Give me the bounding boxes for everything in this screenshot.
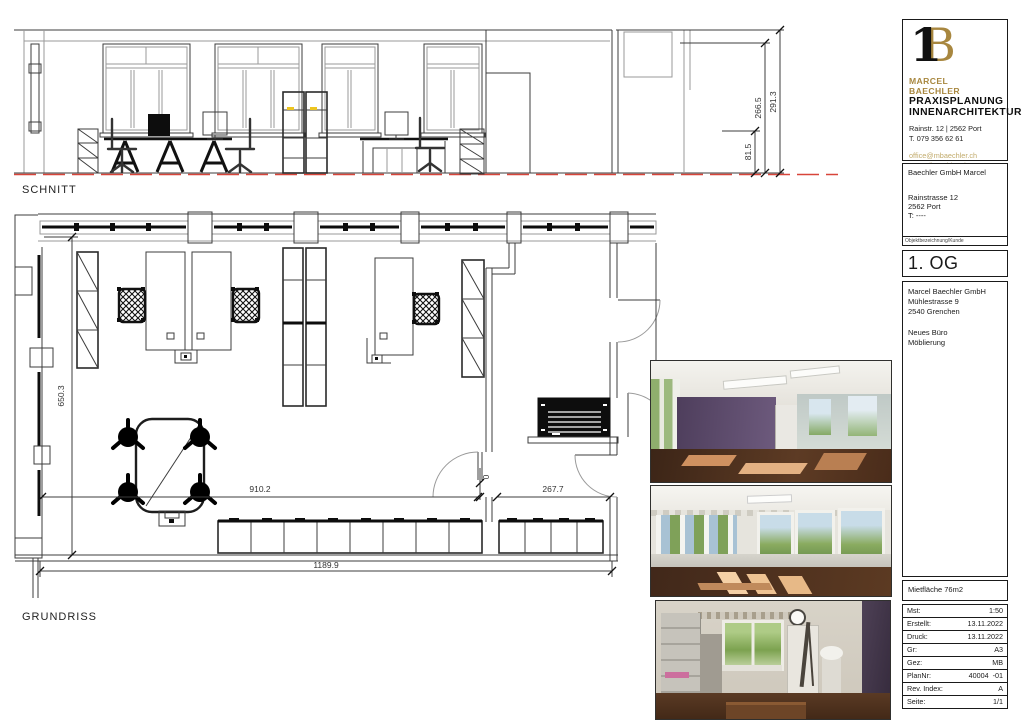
photo1-sun-patch-1 [681, 455, 737, 466]
photo2-light [747, 494, 792, 503]
table-row-page: Seite: 1/1 [902, 695, 1008, 709]
section-wardrobe [486, 73, 530, 173]
table-row-created: Erstellt: 13.11.2022 [902, 617, 1008, 631]
row-label: PlanNr: [907, 670, 931, 682]
brand-email: office@mbaechler.ch [909, 151, 1001, 160]
plan-desk-pair [146, 252, 231, 363]
site-photo-purple-room [650, 360, 892, 483]
brand-address: Rainstr. 12 | 2562 Port [909, 124, 1001, 133]
dim-291: 291.3 [768, 91, 778, 113]
plan-piano [528, 398, 618, 443]
section-drawing: SCHNITT [14, 30, 838, 196]
row-label: Gez: [907, 657, 922, 669]
plan-double-shelf [283, 248, 326, 406]
photo3-ball [820, 646, 843, 660]
photo3-sill [717, 665, 783, 671]
project-city: 2540 Grenchen [908, 307, 1002, 317]
dim-door-zero: 0 [481, 474, 491, 479]
floor-plan-drawing: GRUNDRISS [15, 212, 670, 623]
client-tel: T: ---- [908, 211, 1002, 220]
dim-910: 910.2 [249, 484, 271, 494]
project-company: Marcel Baechler GmbH [908, 287, 1002, 297]
row-label: Seite: [907, 696, 925, 708]
photo2-window-band-left [656, 515, 738, 555]
project-desc-2: Möblierung [908, 338, 1002, 348]
row-label: Gr: [907, 644, 917, 656]
photo3-table [726, 702, 806, 720]
dim-650: 650.3 [56, 385, 66, 407]
photo2-sun-stripe-4 [697, 583, 772, 590]
section-office-chair-2 [226, 119, 254, 172]
area-label: Mietfläche 76m2 [908, 585, 963, 594]
brand-phone: T. 079 356 62 61 [909, 134, 1001, 143]
brand-name: MARCEL BAECHLER [909, 76, 1001, 96]
brand-line-2: INNENARCHITEKTUR [909, 107, 1001, 118]
client-caption: Objektbezeichnung/Kunde [903, 236, 1007, 245]
site-photo-window-room [650, 485, 892, 597]
photo3-shelf [661, 613, 702, 705]
table-row-plan-nr: PlanNr: 40004 -01 [902, 669, 1008, 683]
section-label: SCHNITT [22, 184, 77, 196]
plan-cabinet-row-left [218, 518, 482, 553]
photo1-sun-patch-2 [738, 463, 808, 474]
photo1-purple-wall [677, 397, 775, 449]
brand-line-1: PRAXISPLANUNG [909, 96, 1001, 107]
table-row-scale: Mst: 1:50 [902, 604, 1008, 618]
site-photo-small-room [655, 600, 891, 720]
plan-shelf-left [77, 252, 98, 368]
table-row-drawn-by: Gez: MB [902, 656, 1008, 670]
plan-desk-right [367, 258, 413, 363]
row-label: Mst: [907, 605, 921, 617]
plan-sheet: SCHNITT 291.3 266.5 81.5 [0, 0, 1024, 724]
section-shelf-2 [460, 129, 484, 174]
row-label: Erstellt: [907, 618, 931, 630]
table-row-size: Gr: A3 [902, 643, 1008, 657]
dim-266: 266.5 [753, 97, 763, 119]
plan-left-wall [15, 215, 53, 598]
plan-chair-hatched-3 [412, 292, 439, 324]
section-desk-2 [360, 112, 448, 173]
dim-81: 81.5 [743, 143, 753, 160]
row-value: MB [992, 657, 1003, 669]
photo1-mirror-reflection-2 [848, 396, 877, 436]
table-row-printed: Druck: 13.11.2022 [902, 630, 1008, 644]
photo1-window-wall [651, 379, 680, 454]
project-street: Mühlestrasse 9 [908, 297, 1002, 307]
section-window-2 [212, 44, 305, 137]
dim-1189: 1189.9 [313, 560, 339, 570]
section-office-chair-3 [416, 118, 444, 171]
plan-partition-wall [433, 243, 515, 522]
dim-267: 267.7 [542, 484, 564, 494]
photo3-window [722, 620, 784, 671]
row-value: 40004 -01 [969, 670, 1003, 682]
plan-cabinet-row-right [499, 518, 603, 553]
client-street: Rainstrasse 12 [908, 193, 1002, 202]
photo2-cabinets [651, 554, 891, 568]
photo2-window-1 [757, 512, 794, 560]
logo-monogram-1: 1 [910, 18, 942, 72]
plan-chair-hatched-2 [231, 287, 259, 322]
row-value: A [998, 683, 1003, 695]
row-value: 13.11.2022 [968, 631, 1003, 643]
section-window-1 [100, 44, 193, 137]
table-row-rev-index: Rev. Index: A [902, 682, 1008, 696]
row-value: 1/1 [993, 696, 1003, 708]
section-window-4 [421, 44, 485, 137]
row-value: 1:50 [989, 605, 1003, 617]
row-value: 13.11.2022 [968, 618, 1003, 630]
section-duct [624, 32, 672, 77]
area-box: Mietfläche 76m2 [902, 580, 1008, 601]
project-desc-1: Neues Büro [908, 328, 1002, 338]
client-city: 2562 Port [908, 202, 1002, 211]
section-shelf-small [78, 129, 98, 173]
client-name: Baechler GmbH Marcel [908, 168, 1002, 177]
row-label: Rev. Index: [907, 683, 943, 695]
row-label: Druck: [907, 631, 928, 643]
plan-shelf-right [462, 260, 484, 377]
section-window-3 [319, 44, 381, 137]
floor-label-box: 1. OG [902, 250, 1008, 277]
photo2-window-2 [795, 510, 835, 560]
plan-black-chairs [113, 420, 215, 503]
company-logo: B 1 [909, 24, 1001, 74]
project-box: Marcel Baechler GmbH Mühlestrasse 9 2540… [902, 281, 1008, 577]
row-value: A3 [994, 644, 1003, 656]
photo3-pink-item [665, 672, 688, 678]
photo3-frieze [698, 612, 801, 619]
plan-label: GRUNDRISS [22, 611, 97, 623]
photo1-door [775, 405, 799, 451]
floor-label: 1. OG [908, 253, 959, 273]
logo-box: B 1 MARCEL BAECHLER PRAXISPLANUNG INNENA… [902, 19, 1008, 161]
plan-chair-hatched-1 [117, 287, 145, 322]
section-dimensions: 291.3 266.5 81.5 [616, 26, 784, 177]
photo1-mirror-reflection-1 [809, 399, 831, 435]
photo3-purple-wall [862, 601, 890, 693]
plan-top-wall [38, 212, 656, 243]
client-box: Baechler GmbH Marcel Rainstrasse 12 2562… [902, 163, 1008, 246]
